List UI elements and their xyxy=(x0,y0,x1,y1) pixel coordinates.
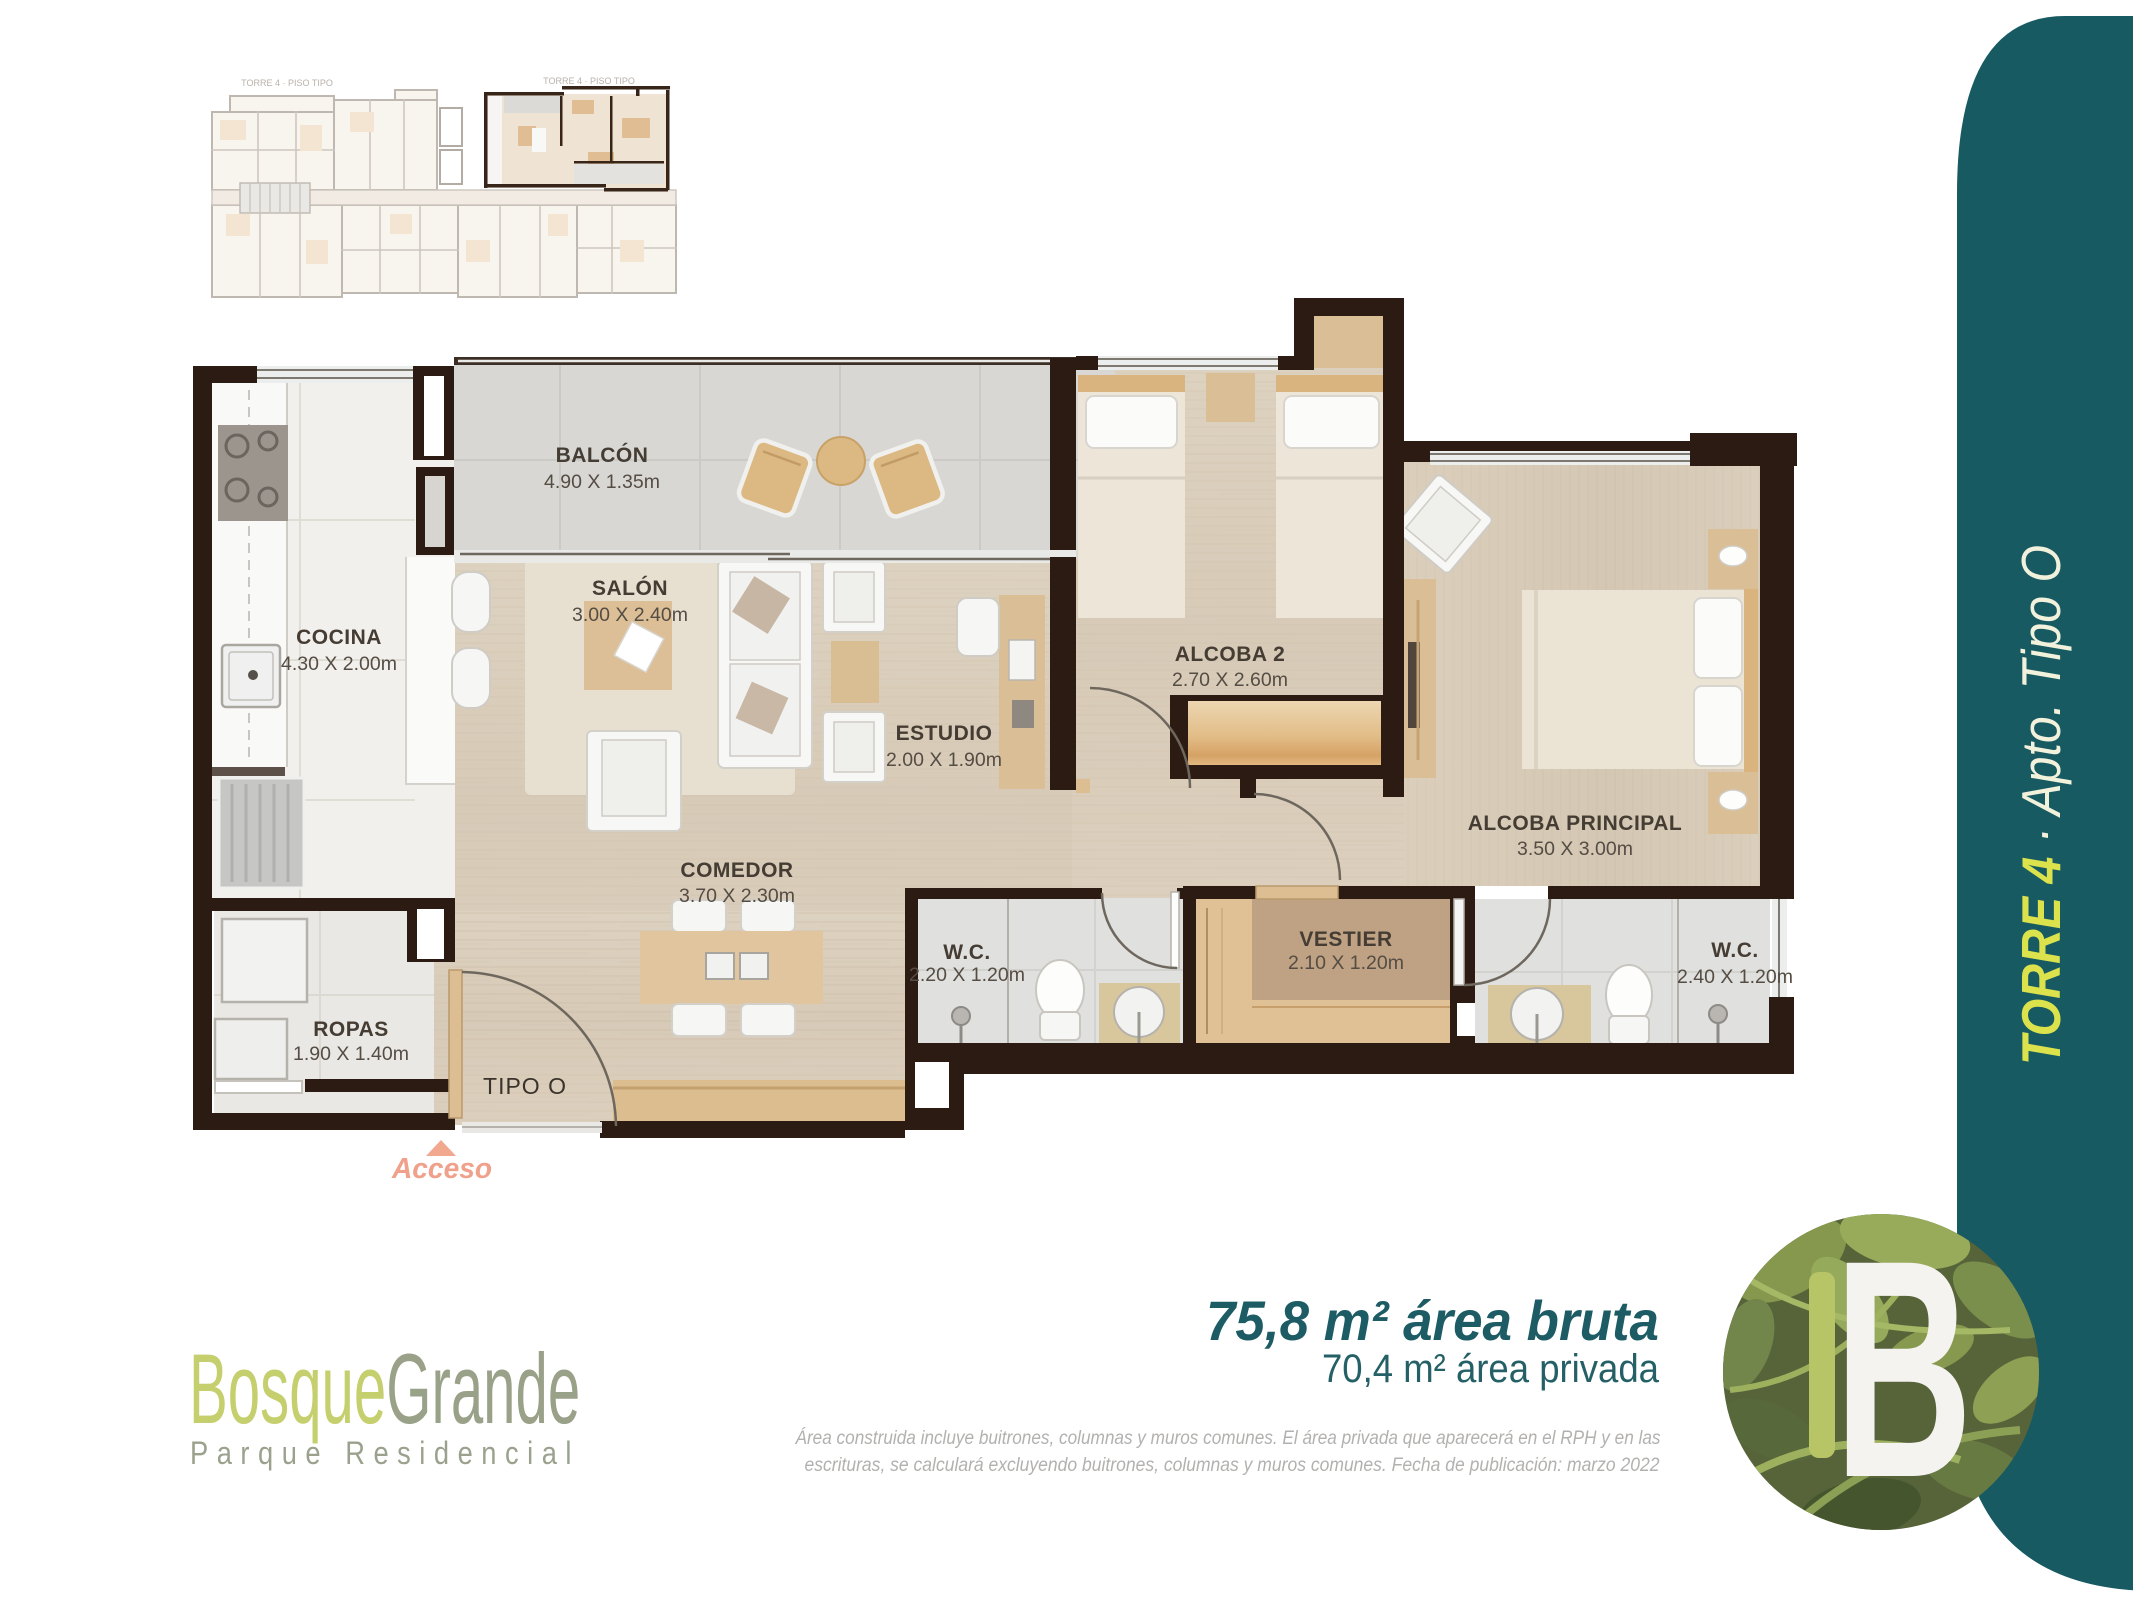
svg-text:2.70 X 2.60m: 2.70 X 2.60m xyxy=(1172,669,1288,691)
svg-text:Acceso: Acceso xyxy=(391,1153,492,1185)
svg-text:ALCOBA 2: ALCOBA 2 xyxy=(1175,643,1286,666)
svg-text:ALCOBA PRINCIPAL: ALCOBA PRINCIPAL xyxy=(1468,812,1683,835)
svg-text:BosqueGrande: BosqueGrande xyxy=(189,1334,580,1445)
svg-text:ROPAS: ROPAS xyxy=(313,1018,389,1041)
svg-text:2.00 X 1.90m: 2.00 X 1.90m xyxy=(886,749,1002,771)
svg-text:VESTIER: VESTIER xyxy=(1299,928,1392,951)
svg-text:TORRE 4 · Apto. Tipo O: TORRE 4 · Apto. Tipo O xyxy=(2010,545,2072,1065)
svg-text:1.90 X 1.40m: 1.90 X 1.40m xyxy=(293,1043,409,1065)
svg-text:TORRE 4 · PISO TIPO: TORRE 4 · PISO TIPO xyxy=(241,78,333,88)
svg-text:B: B xyxy=(1834,1196,1973,1542)
svg-text:TIPO O: TIPO O xyxy=(483,1073,567,1099)
svg-text:ESTUDIO: ESTUDIO xyxy=(896,722,993,745)
svg-text:4.90 X 1.35m: 4.90 X 1.35m xyxy=(544,471,660,493)
svg-text:COCINA: COCINA xyxy=(296,626,382,649)
svg-text:75,8 m² área bruta: 75,8 m² área bruta xyxy=(1206,1289,1659,1352)
svg-text:2.10 X 1.20m: 2.10 X 1.20m xyxy=(1288,952,1404,974)
svg-text:2.20 X 1.20m: 2.20 X 1.20m xyxy=(909,964,1025,986)
svg-text:COMEDOR: COMEDOR xyxy=(680,859,793,882)
svg-text:Área construida incluye buitro: Área construida incluye buitrones, colum… xyxy=(795,1426,1661,1449)
svg-text:escrituras, se calculará exclu: escrituras, se calculará excluyendo buit… xyxy=(805,1454,1660,1476)
svg-text:Parque Residencial: Parque Residencial xyxy=(190,1435,580,1471)
svg-text:3.00 X 2.40m: 3.00 X 2.40m xyxy=(572,604,688,626)
svg-text:70,4 m² área privada: 70,4 m² área privada xyxy=(1322,1347,1660,1391)
svg-text:W.C.: W.C. xyxy=(943,941,991,964)
svg-text:4.30 X 2.00m: 4.30 X 2.00m xyxy=(281,653,397,675)
svg-text:BALCÓN: BALCÓN xyxy=(556,443,649,467)
svg-text:W.C.: W.C. xyxy=(1711,939,1759,962)
svg-text:3.70 X 2.30m: 3.70 X 2.30m xyxy=(679,885,795,907)
svg-text:TORRE 4 · PISO TIPO: TORRE 4 · PISO TIPO xyxy=(543,76,635,86)
svg-text:3.50 X 3.00m: 3.50 X 3.00m xyxy=(1517,838,1633,860)
svg-text:SALÓN: SALÓN xyxy=(592,576,668,600)
svg-text:2.40 X 1.20m: 2.40 X 1.20m xyxy=(1677,966,1793,988)
